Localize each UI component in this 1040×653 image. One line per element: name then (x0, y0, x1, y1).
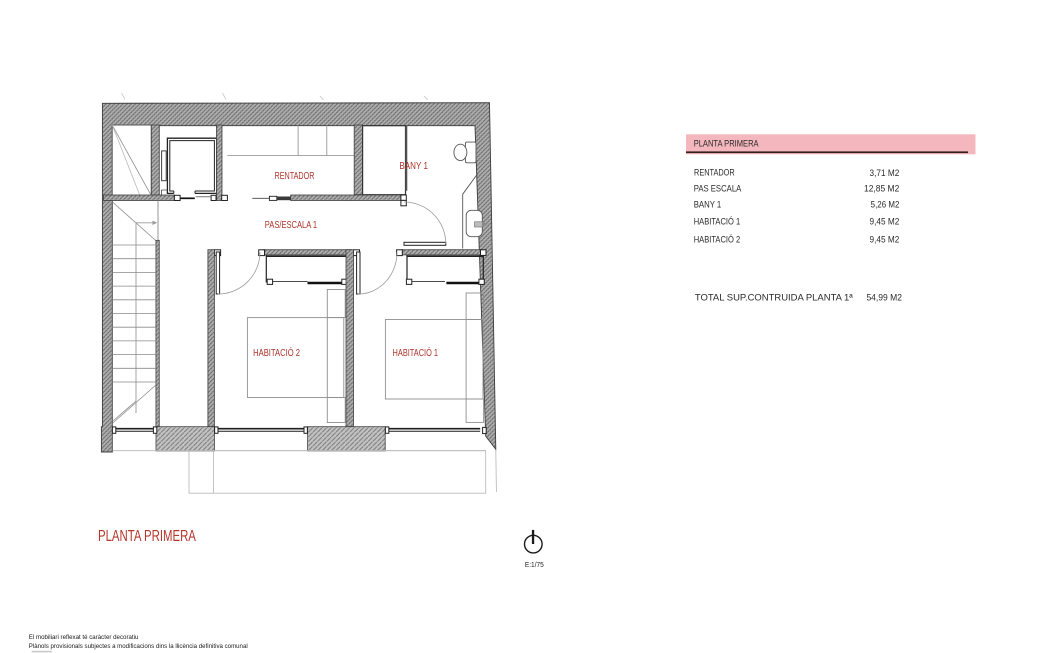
svg-text:9,45 M2: 9,45 M2 (870, 234, 900, 245)
svg-text:HABITACIÓ 2: HABITACIÓ 2 (694, 233, 741, 244)
svg-text:BANY 1: BANY 1 (399, 160, 428, 171)
svg-text:E:1/75: E:1/75 (525, 562, 544, 569)
svg-text:3,71 M2: 3,71 M2 (870, 167, 900, 178)
svg-text:9,45 M2: 9,45 M2 (870, 216, 900, 227)
svg-text:HABITACIÓ 2: HABITACIÓ 2 (253, 347, 300, 358)
svg-text:12,85 M2: 12,85 M2 (864, 183, 899, 194)
svg-text:RENTADOR: RENTADOR (694, 167, 735, 178)
svg-text:PAS/ESCALA 1: PAS/ESCALA 1 (265, 219, 317, 230)
svg-text:BANY 1: BANY 1 (694, 199, 722, 210)
svg-text:PLANTA PRIMERA: PLANTA PRIMERA (694, 138, 759, 149)
svg-text:5,26 M2: 5,26 M2 (871, 199, 900, 210)
svg-text:HABITACIÓ 1: HABITACIÓ 1 (694, 215, 741, 226)
svg-text:Plànols provisionals subjectes: Plànols provisionals subjectes a modific… (29, 643, 248, 650)
svg-text:HABITACIÓ 1: HABITACIÓ 1 (393, 347, 438, 359)
svg-text:TOTAL SUP.CONTRUIDA PLANTA 1ª: TOTAL SUP.CONTRUIDA PLANTA 1ª (695, 292, 853, 303)
svg-text:PAS ESCALA: PAS ESCALA (694, 183, 742, 194)
svg-text:RENTADOR: RENTADOR (274, 170, 314, 182)
svg-text:PLANTA PRIMERA: PLANTA PRIMERA (98, 527, 197, 544)
svg-text:El mobiliari reflexat té caràc: El mobiliari reflexat té caràcter decora… (29, 634, 139, 641)
svg-text:54,99 M2: 54,99 M2 (866, 292, 901, 303)
